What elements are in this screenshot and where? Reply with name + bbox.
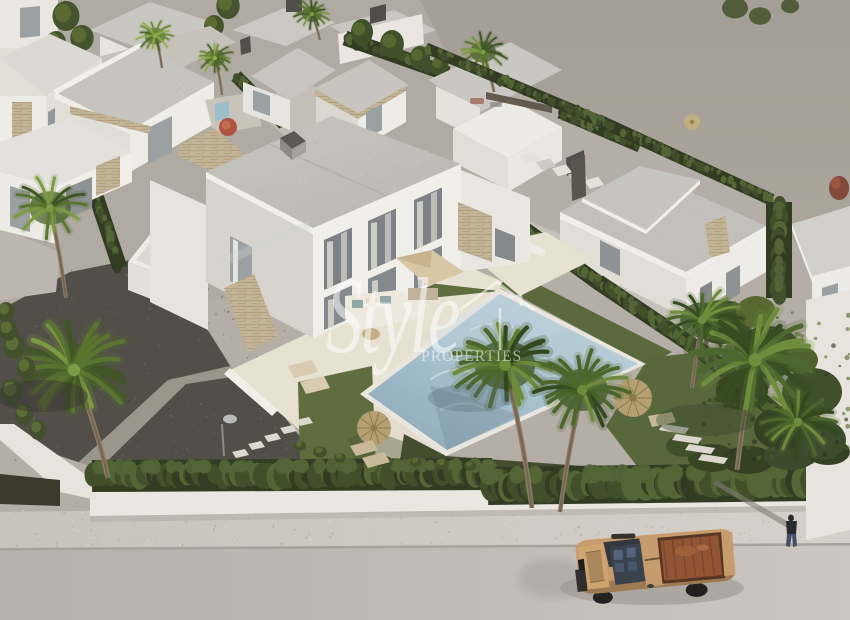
svg-text:PROPERTIES: PROPERTIES (421, 348, 522, 365)
